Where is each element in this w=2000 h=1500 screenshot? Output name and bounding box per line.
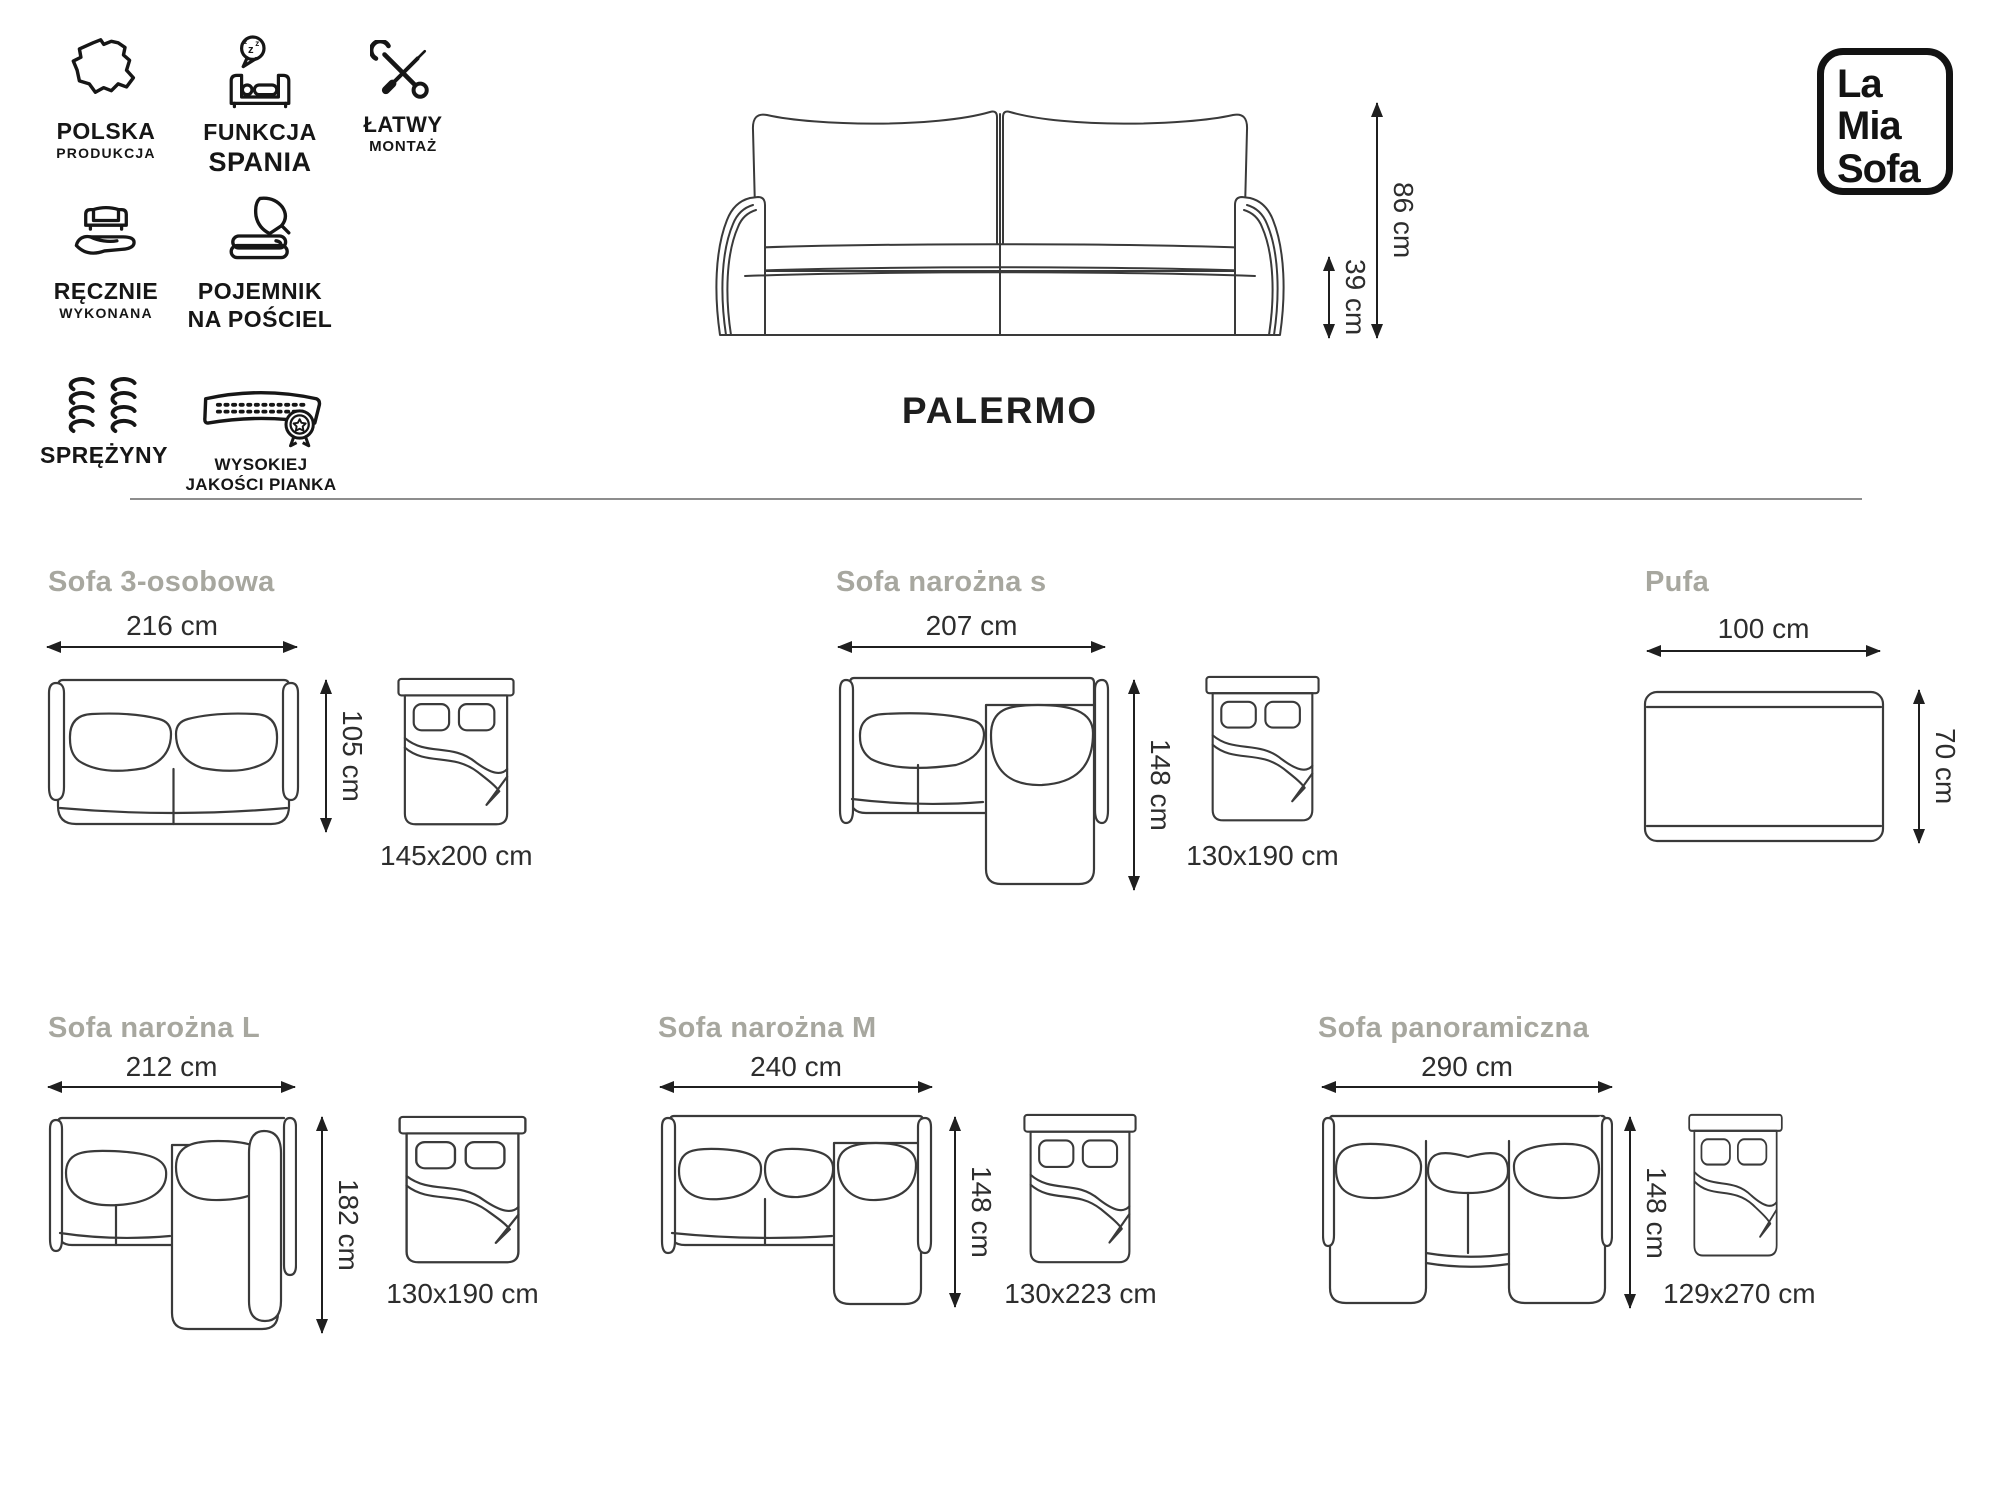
bed-top-view <box>398 1115 527 1270</box>
bed-size-dim: 130x223 cm <box>1003 1278 1158 1310</box>
depth-arrow <box>1133 680 1135 890</box>
variant-depth-dim: 148 cm <box>964 1117 998 1307</box>
seat-height-arrow <box>1328 257 1330 338</box>
depth-arrow <box>1629 1117 1631 1308</box>
feature-recznie-wykonana: RĘCZNIE WYKONANA <box>36 194 176 322</box>
feature-latwy-montaz: ŁATWY MONTAŻ <box>344 40 462 156</box>
section-divider <box>130 498 1862 500</box>
variant-width-dim: 100 cm <box>1647 613 1880 645</box>
bed-size-dim: 130x190 cm <box>385 1278 540 1310</box>
width-arrow <box>1322 1086 1612 1088</box>
sofa-narozna-l-top-view <box>48 1115 297 1333</box>
svg-text:z: z <box>248 44 254 56</box>
depth-arrow <box>954 1117 956 1307</box>
spec-sheet: POLSKA PRODUKCJA z z z FUNKCJA SPANIA <box>0 0 2000 1500</box>
variant-depth-dim: 148 cm <box>1143 680 1177 890</box>
feature-sublabel: JAKOŚCI PIANKA <box>185 474 336 495</box>
poland-map-icon <box>68 36 144 112</box>
variant-title: Sofa narożna M <box>658 1012 877 1045</box>
variant-width-dim: 290 cm <box>1322 1051 1612 1083</box>
feature-label: SPRĘŻYNY <box>40 443 168 469</box>
total-height-arrow <box>1376 103 1378 338</box>
feature-sublabel: PRODUKCJA <box>56 145 155 163</box>
feature-sublabel: WYKONANA <box>59 305 153 323</box>
variant-title: Sofa 3-osobowa <box>48 566 275 599</box>
product-name: PALERMO <box>800 390 1200 432</box>
sofa-3-osobowa-top-view <box>47 677 300 832</box>
feature-label: POJEMNIK <box>198 279 322 305</box>
width-arrow <box>660 1086 932 1088</box>
width-arrow <box>48 1086 295 1088</box>
feature-label: ŁATWY <box>363 113 442 138</box>
width-arrow <box>47 646 297 648</box>
svg-text:z: z <box>255 39 259 48</box>
variant-title: Sofa narożna s <box>836 566 1046 599</box>
bed-top-view <box>1205 675 1320 828</box>
feature-wysokiej-jakosci-pianka: WYSOKIEJ JAKOŚCI PIANKA <box>176 376 346 495</box>
sofa-panoramiczna-top-view <box>1322 1113 1613 1308</box>
width-arrow <box>1647 650 1880 652</box>
feature-sprezyny: SPRĘŻYNY <box>34 372 174 469</box>
feature-label: POLSKA <box>57 119 156 145</box>
feature-label: RĘCZNIE <box>54 279 158 305</box>
seat-height-dim: 39 cm <box>1338 250 1372 345</box>
variant-width-dim: 207 cm <box>838 610 1105 642</box>
bedding-storage-icon <box>220 192 300 272</box>
feature-label: FUNKCJA <box>203 120 316 146</box>
width-arrow <box>838 646 1105 648</box>
total-height-dim: 86 cm <box>1386 103 1420 338</box>
springs-icon <box>56 372 152 436</box>
variant-depth-dim: 182 cm <box>331 1117 365 1333</box>
variant-depth-dim: 70 cm <box>1928 690 1962 843</box>
logo-line: Mia <box>1837 105 1946 147</box>
feature-sublabel: MONTAŻ <box>369 138 437 157</box>
feature-sublabel: SPANIA <box>208 146 311 180</box>
high-quality-foam-icon <box>194 376 328 448</box>
bed-size-dim: 130x190 cm <box>1185 840 1340 872</box>
logo-line: La <box>1837 63 1946 105</box>
depth-arrow <box>321 1117 323 1333</box>
sleep-function-icon: z z z <box>220 33 300 113</box>
handmade-icon <box>67 194 145 272</box>
variant-width-dim: 240 cm <box>660 1051 932 1083</box>
feature-label: WYSOKIEJ <box>215 455 308 474</box>
sofa-front-view-drawing <box>710 98 1290 340</box>
feature-funkcja-spania: z z z FUNKCJA SPANIA <box>186 33 334 180</box>
brand-logo: La Mia Sofa <box>1817 48 1953 195</box>
sofa-narozna-s-top-view <box>838 675 1110 888</box>
variant-width-dim: 216 cm <box>47 610 297 642</box>
easy-assembly-icon <box>370 40 436 106</box>
feature-sublabel: NA POŚCIEL <box>188 305 333 334</box>
variant-width-dim: 212 cm <box>48 1051 295 1083</box>
variant-depth-dim: 105 cm <box>335 680 369 832</box>
pufa-top-view <box>1643 690 1885 843</box>
svg-text:z: z <box>244 39 247 46</box>
bed-size-dim: 145x200 cm <box>380 840 532 872</box>
depth-arrow <box>1918 690 1920 843</box>
depth-arrow <box>325 680 327 832</box>
feature-polska-produkcja: POLSKA PRODUKCJA <box>36 36 176 162</box>
bed-top-view <box>1688 1113 1783 1263</box>
logo-line: Sofa <box>1837 148 1946 190</box>
variant-title: Sofa panoramiczna <box>1318 1012 1589 1045</box>
variant-title: Sofa narożna L <box>48 1012 260 1045</box>
bed-size-dim: 129x270 cm <box>1663 1278 1808 1310</box>
sofa-narozna-m-top-view <box>660 1113 933 1307</box>
feature-pojemnik-na-posciel: POJEMNIK NA POŚCIEL <box>180 192 340 334</box>
variant-title: Pufa <box>1645 566 1709 599</box>
bed-top-view <box>397 677 515 832</box>
bed-top-view <box>1023 1113 1137 1270</box>
